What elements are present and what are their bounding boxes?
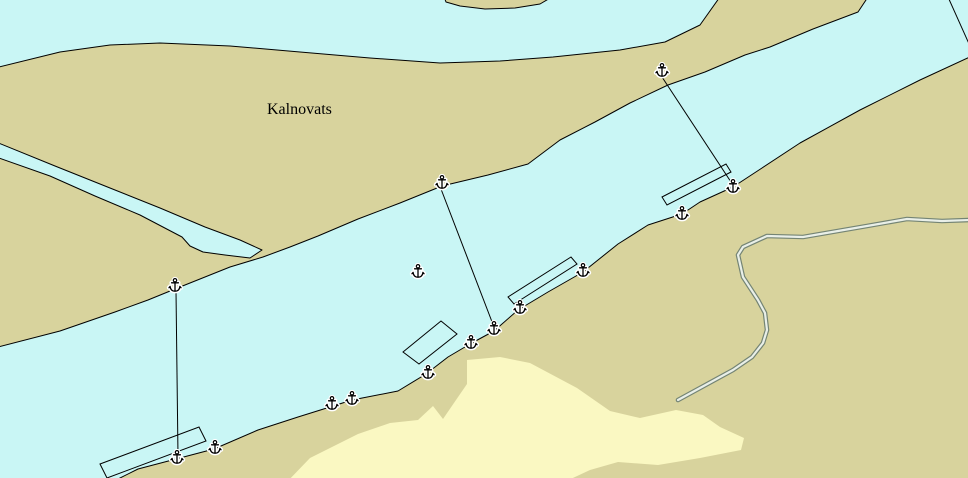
waterway-chart: Kalnovats (0, 0, 968, 478)
chart-viewport[interactable]: Kalnovats (0, 0, 968, 478)
place-label: Kalnovats (267, 101, 332, 118)
